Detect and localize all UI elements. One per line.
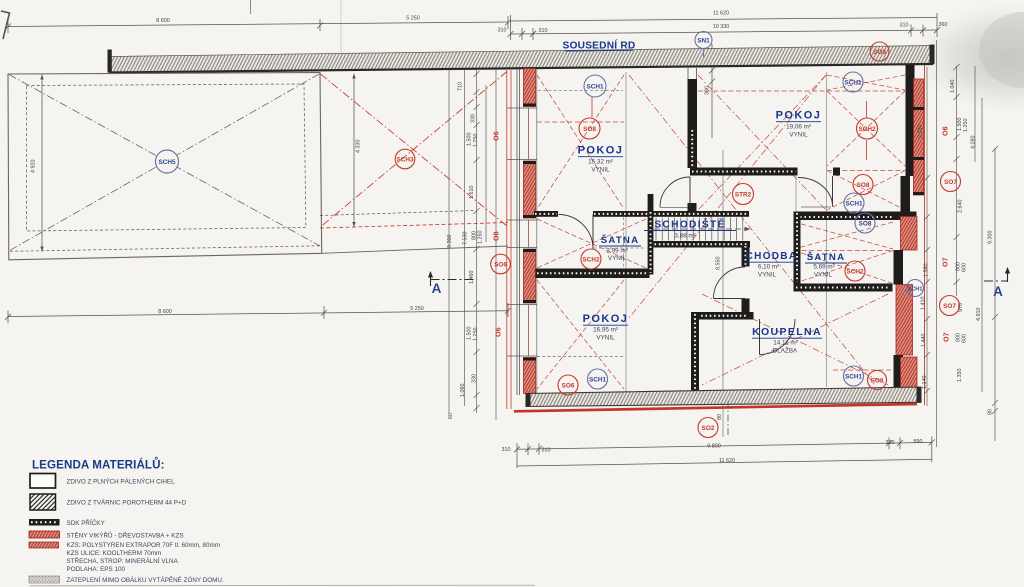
svg-text:VYNIL: VYNIL — [608, 255, 627, 262]
svg-text:SO6: SO6 — [494, 262, 507, 269]
svg-text:SCH2: SCH2 — [582, 257, 599, 264]
svg-text:SO8: SO8 — [857, 182, 870, 189]
svg-text:SDK PŘÍČKY: SDK PŘÍČKY — [67, 518, 106, 527]
svg-text:11 620: 11 620 — [713, 11, 729, 17]
svg-text:16,95 m²: 16,95 m² — [593, 327, 618, 334]
svg-text:SCH1: SCH1 — [845, 374, 862, 381]
svg-text:SCH1: SCH1 — [908, 287, 923, 293]
svg-text:1.460: 1.460 — [469, 271, 475, 285]
svg-text:STR2: STR2 — [735, 192, 752, 199]
svg-text:5 250: 5 250 — [406, 16, 420, 22]
svg-text:STŘECHA, STROP: MINERÁLNÍ VLNA: STŘECHA, STROP: MINERÁLNÍ VLNA — [67, 556, 179, 565]
svg-text:SCHODIŠTĚ: SCHODIŠTĚ — [654, 218, 725, 231]
svg-text:1.250: 1.250 — [963, 119, 969, 133]
svg-text:9 800: 9 800 — [707, 444, 721, 450]
svg-text:8 600: 8 600 — [158, 309, 172, 315]
svg-text:SCH1: SCH1 — [844, 80, 861, 87]
svg-text:8 600: 8 600 — [156, 18, 170, 24]
svg-text:SO7: SO7 — [943, 303, 956, 310]
svg-text:310: 310 — [498, 28, 507, 34]
svg-text:SCH2: SCH2 — [846, 269, 863, 276]
svg-text:SCH1: SCH1 — [586, 84, 603, 91]
svg-text:VYNIL: VYNIL — [596, 335, 615, 342]
svg-text:SN1: SN1 — [697, 38, 710, 45]
svg-text:KOUPELNA: KOUPELNA — [752, 326, 822, 338]
svg-text:60: 60 — [448, 413, 454, 419]
svg-text:1.250: 1.250 — [473, 328, 479, 342]
svg-text:SCH1: SCH1 — [845, 201, 862, 208]
svg-text:A: A — [993, 284, 1003, 299]
svg-text:19,06 m²: 19,06 m² — [786, 124, 811, 131]
svg-text:5 250: 5 250 — [410, 306, 424, 312]
svg-text:11 620: 11 620 — [719, 458, 735, 464]
svg-text:O7: O7 — [942, 332, 951, 342]
svg-text:SCH2: SCH2 — [858, 126, 875, 133]
svg-text:SCH3: SCH3 — [396, 157, 413, 164]
svg-text:PODLAHA: EPS 100: PODLAHA: EPS 100 — [67, 566, 126, 573]
svg-text:LEGENDA MATERIÁLŮ:: LEGENDA MATERIÁLŮ: — [32, 458, 165, 472]
svg-text:330: 330 — [471, 114, 477, 123]
svg-text:SO2: SO2 — [702, 425, 715, 432]
svg-text:1.580: 1.580 — [924, 264, 930, 278]
svg-text:POKOJ: POKOJ — [578, 145, 624, 157]
svg-text:1.250: 1.250 — [473, 134, 479, 148]
svg-text:1.440: 1.440 — [921, 334, 927, 348]
svg-text:600: 600 — [962, 334, 968, 343]
svg-text:VYNIL: VYNIL — [591, 167, 610, 174]
svg-text:SO8: SO8 — [859, 221, 872, 228]
svg-text:SO8: SO8 — [871, 378, 884, 385]
svg-text:7.530: 7.530 — [463, 232, 469, 246]
svg-text:O6: O6 — [494, 327, 503, 337]
svg-text:ŠATNA: ŠATNA — [601, 234, 640, 246]
svg-text:310: 310 — [502, 447, 511, 453]
svg-text:5,69 m²: 5,69 m² — [813, 264, 834, 271]
svg-text:1.500: 1.500 — [467, 133, 473, 147]
svg-text:2.640: 2.640 — [958, 200, 964, 214]
svg-text:1.410: 1.410 — [921, 297, 927, 311]
svg-text:1.250: 1.250 — [478, 231, 484, 245]
svg-text:4 330: 4 330 — [356, 140, 362, 154]
svg-text:SOUSEDNÍ RD: SOUSEDNÍ RD — [563, 39, 636, 52]
svg-text:2.180: 2.180 — [918, 125, 924, 139]
svg-text:10 330: 10 330 — [713, 24, 730, 30]
svg-text:O6: O6 — [492, 131, 501, 141]
svg-text:SO8: SO8 — [583, 126, 596, 133]
svg-text:SCH1: SCH1 — [589, 377, 606, 384]
svg-text:O6: O6 — [941, 126, 950, 136]
svg-text:1.500: 1.500 — [467, 327, 473, 341]
svg-text:600: 600 — [962, 263, 968, 272]
svg-text:SO7: SO7 — [944, 179, 957, 186]
svg-text:9.300: 9.300 — [447, 235, 453, 249]
svg-text:310: 310 — [542, 448, 551, 454]
svg-text:KZS: POLYSTYREN EXTRAPOR 70F t: KZS: POLYSTYREN EXTRAPOR 70F tl. 60mm, 8… — [67, 542, 221, 549]
svg-text:POKOJ: POKOJ — [583, 313, 629, 325]
svg-text:890: 890 — [914, 439, 923, 445]
svg-text:DLAŽBA: DLAŽBA — [773, 346, 798, 355]
svg-text:80: 80 — [717, 414, 723, 420]
svg-text:4.280: 4.280 — [971, 136, 977, 150]
svg-text:4.910: 4.910 — [976, 308, 982, 322]
svg-text:2,99 m²: 2,99 m² — [606, 248, 627, 255]
svg-text:KZS ULICE: KOOLTHERM 70mm: KZS ULICE: KOOLTHERM 70mm — [67, 550, 162, 557]
svg-text:1.060: 1.060 — [460, 384, 466, 398]
svg-text:1.350: 1.350 — [957, 369, 963, 383]
svg-text:3,88 m²: 3,88 m² — [674, 233, 695, 240]
svg-text:VYNIL: VYNIL — [814, 272, 833, 279]
svg-text:SCH5: SCH5 — [158, 159, 175, 166]
svg-text:ZDIVO Z TVÁRNIC POROTHERM 44 P: ZDIVO Z TVÁRNIC POROTHERM 44 P+D — [67, 498, 187, 507]
svg-text:330: 330 — [472, 374, 478, 383]
svg-text:1.140: 1.140 — [922, 376, 928, 390]
svg-text:6,10 m²: 6,10 m² — [758, 264, 779, 271]
svg-text:ZATEPLENÍ MIMO OBÁLKU VYTÁPĚNÉ: ZATEPLENÍ MIMO OBÁLKU VYTÁPĚNÉ ZÓNY DOMU… — [67, 575, 224, 584]
svg-text:8.550: 8.550 — [716, 257, 722, 271]
svg-text:STĚNY VIKÝŘŮ - DŘEVOSTAVBA + K: STĚNY VIKÝŘŮ - DŘEVOSTAVBA + KZS — [67, 531, 184, 540]
svg-text:9.300: 9.300 — [988, 231, 994, 245]
svg-text:1.610: 1.610 — [469, 186, 475, 200]
svg-text:15,32 m²: 15,32 m² — [588, 159, 613, 166]
svg-text:CHODBA: CHODBA — [746, 251, 798, 262]
svg-text:1.040: 1.040 — [950, 80, 956, 94]
svg-text:VYNIL: VYNIL — [758, 272, 777, 279]
svg-text:SO6: SO6 — [562, 383, 575, 390]
svg-text:360: 360 — [939, 22, 948, 28]
svg-text:14,11 m²: 14,11 m² — [773, 340, 797, 347]
svg-text:ŠATNA: ŠATNA — [807, 251, 846, 263]
svg-text:POKOJ: POKOJ — [776, 110, 822, 122]
svg-text:A: A — [432, 281, 442, 296]
svg-text:310: 310 — [886, 440, 895, 446]
svg-text:SO8: SO8 — [873, 49, 886, 56]
svg-text:310: 310 — [900, 23, 909, 29]
svg-text:O8: O8 — [492, 231, 501, 241]
svg-text:4 920: 4 920 — [31, 160, 37, 174]
svg-text:310: 310 — [539, 28, 548, 34]
svg-text:710: 710 — [458, 82, 464, 91]
svg-text:O7: O7 — [941, 257, 950, 267]
svg-text:VYNIL: VYNIL — [789, 132, 808, 139]
svg-text:ZDIVO Z PLNÝCH PÁLENÝCH CIHEL: ZDIVO Z PLNÝCH PÁLENÝCH CIHEL — [67, 477, 176, 486]
svg-text:80: 80 — [988, 409, 994, 415]
